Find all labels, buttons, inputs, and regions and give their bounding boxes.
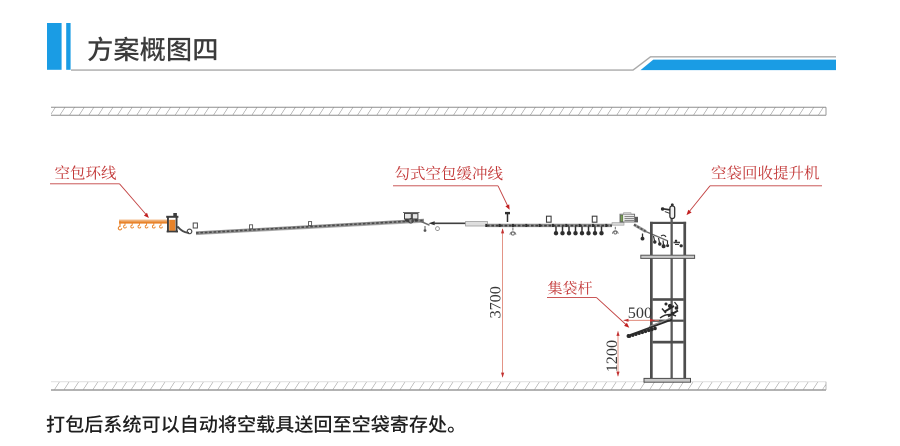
svg-text:3700: 3700	[487, 286, 505, 318]
svg-text:500: 500	[628, 304, 652, 322]
svg-text:1200: 1200	[603, 340, 621, 372]
